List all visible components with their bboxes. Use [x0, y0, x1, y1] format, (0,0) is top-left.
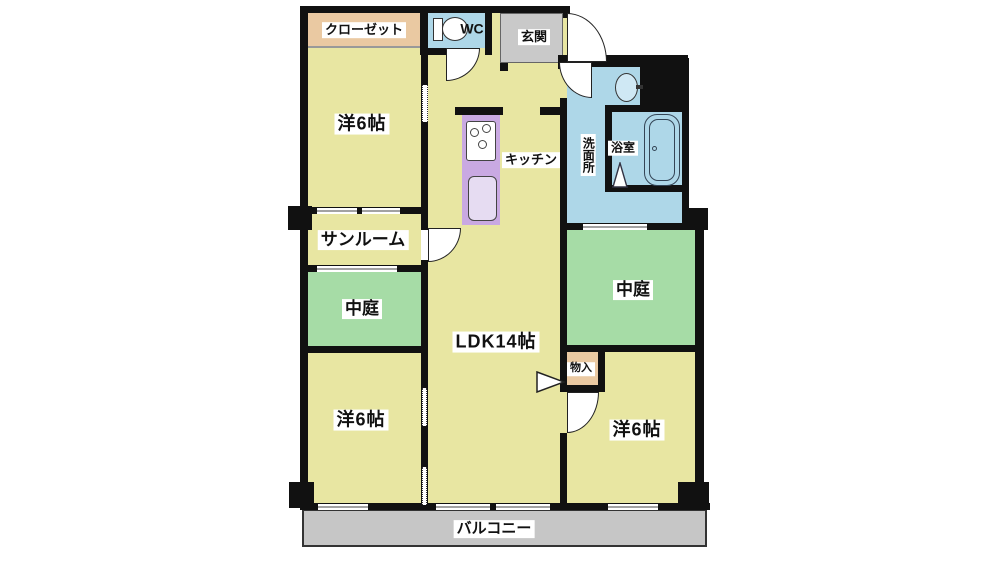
- window: [608, 504, 658, 510]
- door-swing-entrance: [567, 13, 607, 62]
- wall: [560, 98, 567, 230]
- wall: [560, 385, 605, 392]
- bedroom-top-left-label: 洋6帖: [334, 114, 389, 135]
- wall: [560, 345, 703, 352]
- wall: [428, 48, 448, 55]
- window: [496, 504, 550, 510]
- kitchen-sink-icon: [468, 176, 497, 221]
- bathroom-label: 浴室: [608, 141, 638, 156]
- tap-icon: [636, 85, 643, 89]
- balcony-label: バルコニー: [454, 520, 535, 538]
- burner-icon: [478, 140, 487, 149]
- bedroom-bottom-left-label: 洋6帖: [333, 410, 388, 431]
- sliding-door: [422, 467, 427, 505]
- wall: [421, 55, 428, 214]
- wall-pillar: [678, 482, 709, 508]
- wc-label: WC: [457, 21, 486, 38]
- wall: [421, 272, 428, 346]
- wall: [560, 230, 567, 352]
- burner-icon: [482, 124, 491, 133]
- kitchen-label: キッチン: [502, 152, 560, 168]
- duct-shaft: [640, 67, 682, 105]
- window: [318, 504, 368, 510]
- window: [583, 224, 647, 230]
- wall: [605, 105, 682, 112]
- window: [436, 504, 490, 510]
- sliding-door: [422, 388, 427, 426]
- wall-pillar: [500, 63, 508, 71]
- sunroom-label: サンルーム: [318, 230, 409, 250]
- wall: [682, 58, 689, 210]
- wall: [300, 346, 428, 353]
- wall: [695, 230, 704, 505]
- sliding-door: [422, 85, 428, 122]
- closet-label: クローゼット: [322, 22, 406, 38]
- courtyard-left-label: 中庭: [342, 299, 382, 319]
- courtyard-right-label: 中庭: [613, 280, 653, 300]
- entrance-label: 玄関: [518, 29, 550, 45]
- storage-label: 物入: [567, 362, 595, 376]
- bathtub-drain-icon: [652, 146, 657, 151]
- bedroom-bottom-right-label: 洋6帖: [609, 420, 664, 441]
- floor-center-wing: [428, 13, 567, 503]
- burner-icon: [470, 128, 479, 137]
- floor-plan: クローゼット WC 玄関 洋6帖 キッチン 洗面所 浴室 サンルーム 中庭 LD…: [0, 0, 1000, 562]
- washroom-label: 洗面所: [581, 134, 596, 176]
- wall: [420, 6, 428, 55]
- closet-track-line: [308, 46, 421, 48]
- wall: [455, 107, 503, 115]
- bath-door-icon: [612, 162, 628, 188]
- wall: [300, 6, 570, 13]
- sink-icon: [615, 73, 638, 102]
- window: [362, 208, 400, 214]
- window: [317, 266, 397, 272]
- window: [317, 208, 357, 214]
- wall: [300, 6, 308, 210]
- entry-arrow-icon: [536, 371, 566, 393]
- ldk-label: LDK14帖: [452, 332, 539, 353]
- wall: [560, 433, 567, 505]
- wall: [421, 214, 428, 230]
- wall: [421, 260, 428, 272]
